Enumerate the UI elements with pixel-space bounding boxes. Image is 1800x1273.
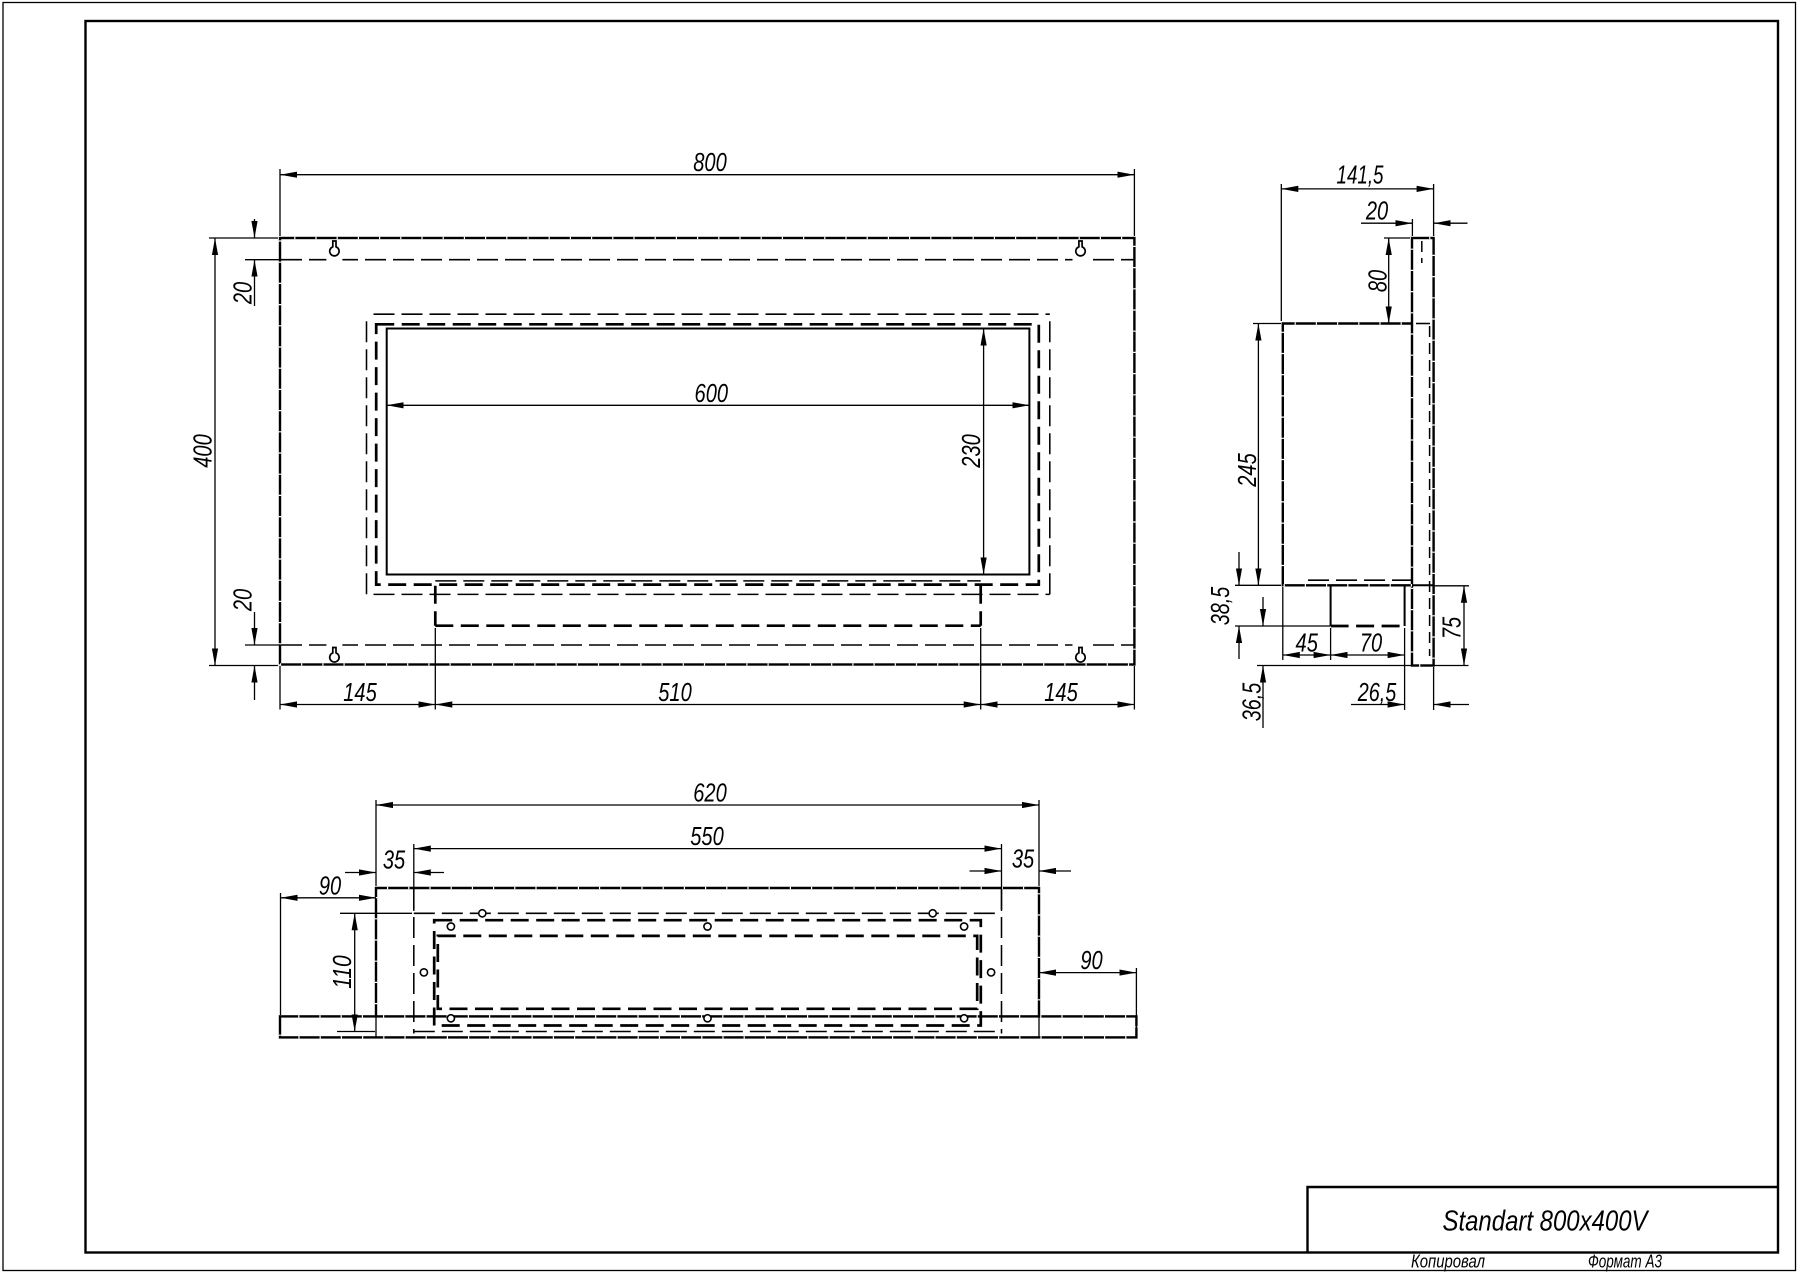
svg-text:550: 550 [690,821,724,851]
svg-text:510: 510 [658,677,692,707]
svg-text:20: 20 [227,281,257,304]
svg-text:70: 70 [1360,628,1383,658]
svg-text:38,5: 38,5 [1205,586,1235,625]
svg-text:245: 245 [1232,453,1262,488]
svg-text:90: 90 [319,870,342,900]
svg-text:230: 230 [956,434,986,469]
svg-text:36,5: 36,5 [1237,682,1267,721]
svg-text:141,5: 141,5 [1337,160,1384,190]
svg-text:600: 600 [695,378,729,408]
svg-text:20: 20 [1365,196,1388,226]
svg-text:620: 620 [693,778,727,808]
svg-text:35: 35 [1012,844,1035,874]
svg-text:800: 800 [693,147,727,177]
svg-text:Копировал: Копировал [1411,1252,1485,1272]
svg-text:Формат A3: Формат A3 [1588,1252,1662,1272]
svg-text:26,5: 26,5 [1357,677,1397,707]
svg-text:35: 35 [383,845,406,875]
svg-text:80: 80 [1362,269,1392,292]
svg-text:Standart 800x400V: Standart 800x400V [1443,1206,1650,1238]
svg-text:90: 90 [1080,945,1103,975]
svg-text:20: 20 [227,588,257,611]
svg-text:145: 145 [343,677,377,707]
svg-text:75: 75 [1437,616,1467,639]
svg-text:400: 400 [187,434,217,468]
svg-text:45: 45 [1296,628,1319,658]
svg-text:110: 110 [327,955,357,989]
svg-text:145: 145 [1044,677,1078,707]
